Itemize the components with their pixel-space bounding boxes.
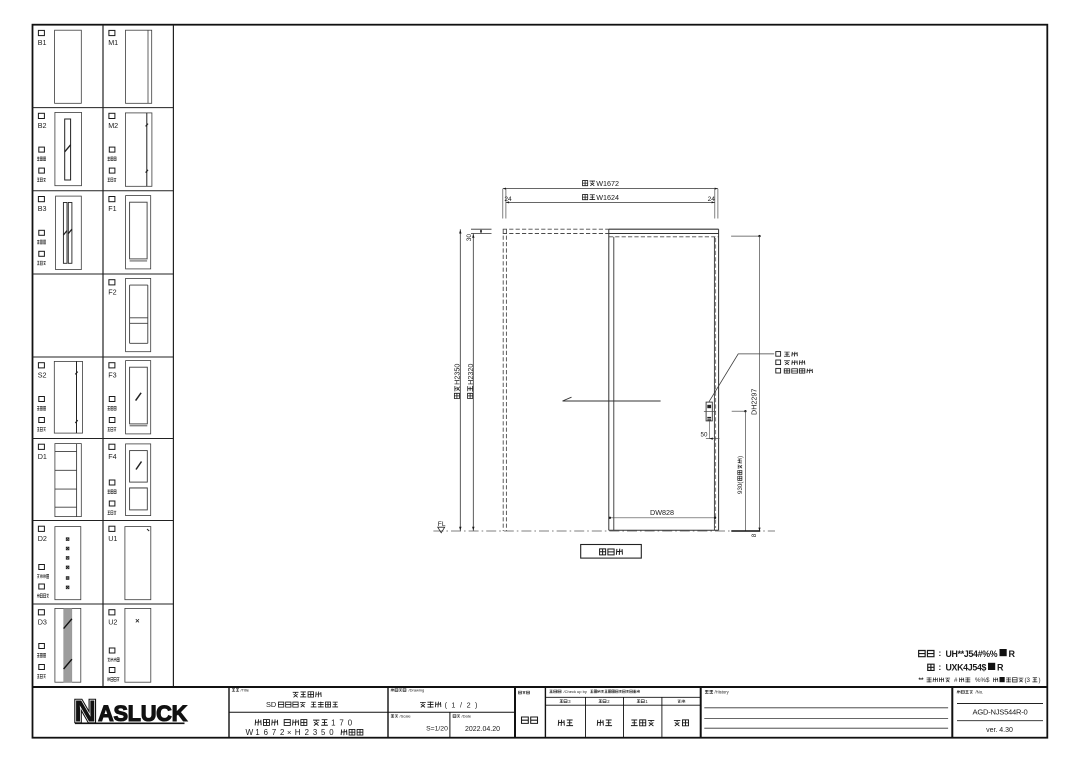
svg-text:UXK4J54$: UXK4J54$ <box>946 663 987 673</box>
svg-text:24: 24 <box>708 196 716 203</box>
svg-text:2022.04.20: 2022.04.20 <box>465 726 500 733</box>
svg-text:SD: SD <box>266 700 276 709</box>
svg-text:D2: D2 <box>38 534 47 543</box>
svg-text:1: 1 <box>255 728 259 737</box>
svg-text:3: 3 <box>568 699 571 704</box>
svg-text:7: 7 <box>339 719 343 728</box>
svg-text:R: R <box>997 663 1004 673</box>
svg-text:H2320: H2320 <box>466 364 475 385</box>
svg-text:(3: (3 <box>1025 677 1031 684</box>
svg-text:F1: F1 <box>108 204 116 213</box>
svg-text:0: 0 <box>348 719 353 728</box>
svg-text:DH2297: DH2297 <box>749 389 758 415</box>
svg-text:%%$: %%$ <box>975 677 990 684</box>
svg-text:/Date: /Date <box>462 714 472 719</box>
svg-text:B3: B3 <box>38 204 47 213</box>
svg-text:H: H <box>295 728 301 737</box>
svg-text:): ) <box>737 456 744 458</box>
svg-text:/Scale: /Scale <box>400 714 412 719</box>
svg-text:7: 7 <box>272 728 276 737</box>
svg-text:DW828: DW828 <box>650 508 674 517</box>
svg-text:2: 2 <box>467 700 471 709</box>
svg-text:1: 1 <box>451 700 455 709</box>
svg-text:B1: B1 <box>38 38 47 47</box>
svg-text:930(: 930( <box>737 481 744 494</box>
svg-text:2: 2 <box>305 728 309 737</box>
svg-text:U2: U2 <box>108 617 117 626</box>
svg-text:0: 0 <box>329 728 334 737</box>
svg-text:#: # <box>954 677 958 684</box>
svg-text:6: 6 <box>264 728 268 737</box>
svg-text:**: ** <box>919 677 924 684</box>
svg-text:M2: M2 <box>108 121 118 130</box>
svg-text:ver. 4.30: ver. 4.30 <box>986 727 1013 734</box>
svg-text:R: R <box>1009 649 1016 659</box>
svg-text:F3: F3 <box>108 370 116 379</box>
svg-text:B2: B2 <box>38 121 47 130</box>
svg-text:H2350: H2350 <box>453 364 462 385</box>
svg-text:S=1/20: S=1/20 <box>426 726 448 733</box>
svg-text:/No.: /No. <box>976 690 984 695</box>
svg-text:3: 3 <box>313 728 317 737</box>
svg-text:): ) <box>1039 677 1041 684</box>
svg-text:/History: /History <box>715 690 730 695</box>
svg-text:/Title: /Title <box>241 688 250 693</box>
svg-text:1: 1 <box>331 719 335 728</box>
svg-text:8: 8 <box>751 533 758 537</box>
svg-text:/Check up by: /Check up by <box>564 689 587 694</box>
svg-text:24: 24 <box>504 196 512 203</box>
svg-text:50: 50 <box>701 432 708 439</box>
svg-text:W1624: W1624 <box>596 193 619 202</box>
svg-text:/Drawing: /Drawing <box>409 688 425 693</box>
svg-text:): ) <box>475 700 477 709</box>
svg-text:W1672: W1672 <box>596 179 619 188</box>
svg-text:F2: F2 <box>108 287 116 296</box>
svg-text:W: W <box>246 728 254 737</box>
svg-text:/: / <box>460 700 462 709</box>
svg-text:F4: F4 <box>108 452 116 461</box>
svg-text:U1: U1 <box>108 534 117 543</box>
svg-text:2: 2 <box>607 699 610 704</box>
svg-text:D1: D1 <box>38 452 47 461</box>
svg-text:S2: S2 <box>38 370 47 379</box>
svg-text:×: × <box>287 728 291 737</box>
svg-text:1: 1 <box>645 699 648 704</box>
svg-text:2: 2 <box>280 728 284 737</box>
svg-text::: : <box>939 649 942 658</box>
svg-text::: : <box>939 663 942 672</box>
svg-text:D3: D3 <box>38 617 47 626</box>
svg-text:(: ( <box>445 700 448 709</box>
svg-text:AGD-NJS544R-0: AGD-NJS544R-0 <box>973 707 1028 716</box>
svg-text:ASLUCK: ASLUCK <box>98 701 188 726</box>
svg-text:30: 30 <box>466 234 473 242</box>
svg-text:M1: M1 <box>108 38 118 47</box>
svg-text:UH**J54#%%: UH**J54#%% <box>946 649 998 659</box>
svg-text:5: 5 <box>321 728 325 737</box>
svg-text:FL: FL <box>438 521 446 528</box>
